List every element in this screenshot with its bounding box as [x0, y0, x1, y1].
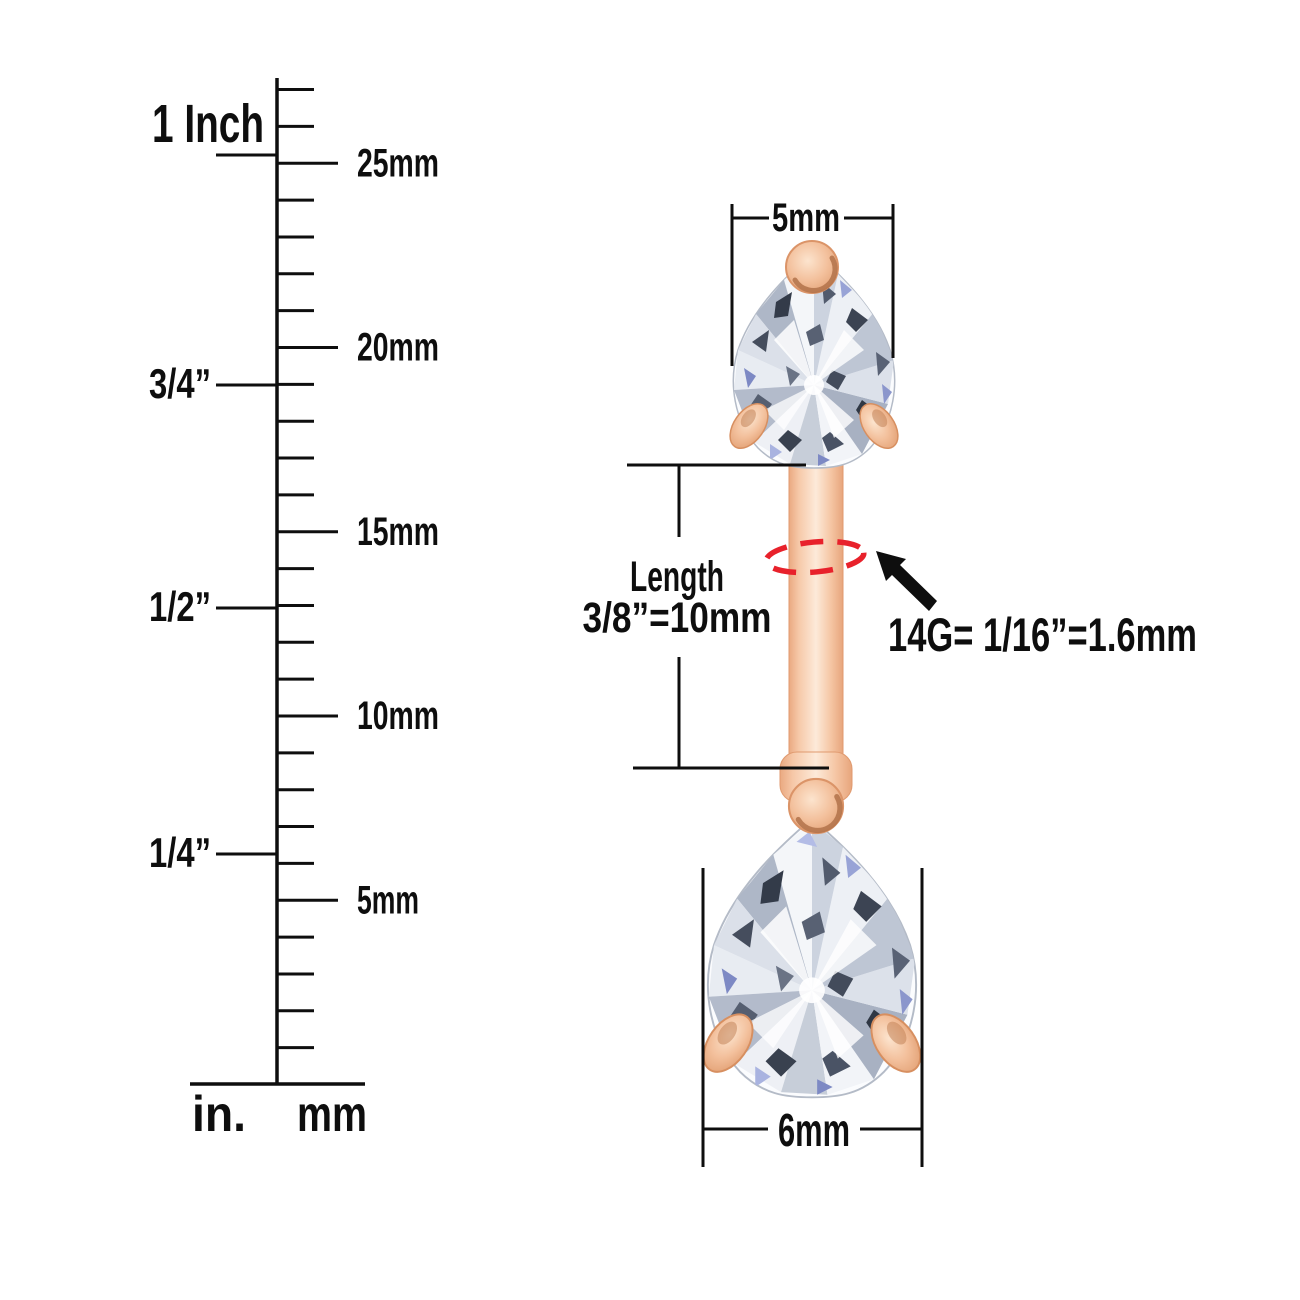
- ruler-mm-mark-label: 10mm: [357, 694, 439, 738]
- bottom-gem: [694, 819, 930, 1098]
- ruler-mm-mark-label: 5mm: [357, 878, 419, 922]
- bottom-gem-ball-prong: [789, 779, 843, 833]
- ruler-ticks-and-labels: 25mm20mm15mm10mm5mm1 Inch3/4”1/2”1/4”: [149, 90, 439, 1048]
- ruler-mm-mark-label: 25mm: [357, 141, 439, 185]
- dim-6mm-label: 6mm: [778, 1104, 850, 1156]
- ruler-inch-mark-label: 1/2”: [149, 583, 211, 630]
- barbell-jewelry: [694, 241, 937, 1097]
- ruler-inch-mark-label: 1 Inch: [152, 94, 264, 154]
- diagram-canvas: 25mm20mm15mm10mm5mm1 Inch3/4”1/2”1/4” in…: [0, 0, 1300, 1300]
- ruler-unit-mm-label: mm: [297, 1086, 367, 1142]
- ruler-mm-mark-label: 20mm: [357, 326, 439, 370]
- ruler: 25mm20mm15mm10mm5mm1 Inch3/4”1/2”1/4” in…: [149, 78, 439, 1142]
- gauge-label: 14G= 1/16”=1.6mm: [888, 608, 1197, 661]
- gauge-arrow-icon: [876, 551, 937, 611]
- dim-5mm-label: 5mm: [772, 196, 840, 240]
- ruler-inch-mark-label: 1/4”: [149, 829, 211, 876]
- ruler-unit-inch-label: in.: [192, 1086, 246, 1142]
- ruler-mm-mark-label: 15mm: [357, 510, 439, 554]
- length-value-label: 3/8”=10mm: [583, 594, 772, 642]
- jewelry-dimension-diagram: 25mm20mm15mm10mm5mm1 Inch3/4”1/2”1/4” in…: [0, 0, 1300, 1300]
- top-gem-ball-prong: [786, 241, 838, 293]
- barbell-bar: [789, 462, 843, 758]
- ruler-inch-mark-label: 3/4”: [149, 360, 211, 407]
